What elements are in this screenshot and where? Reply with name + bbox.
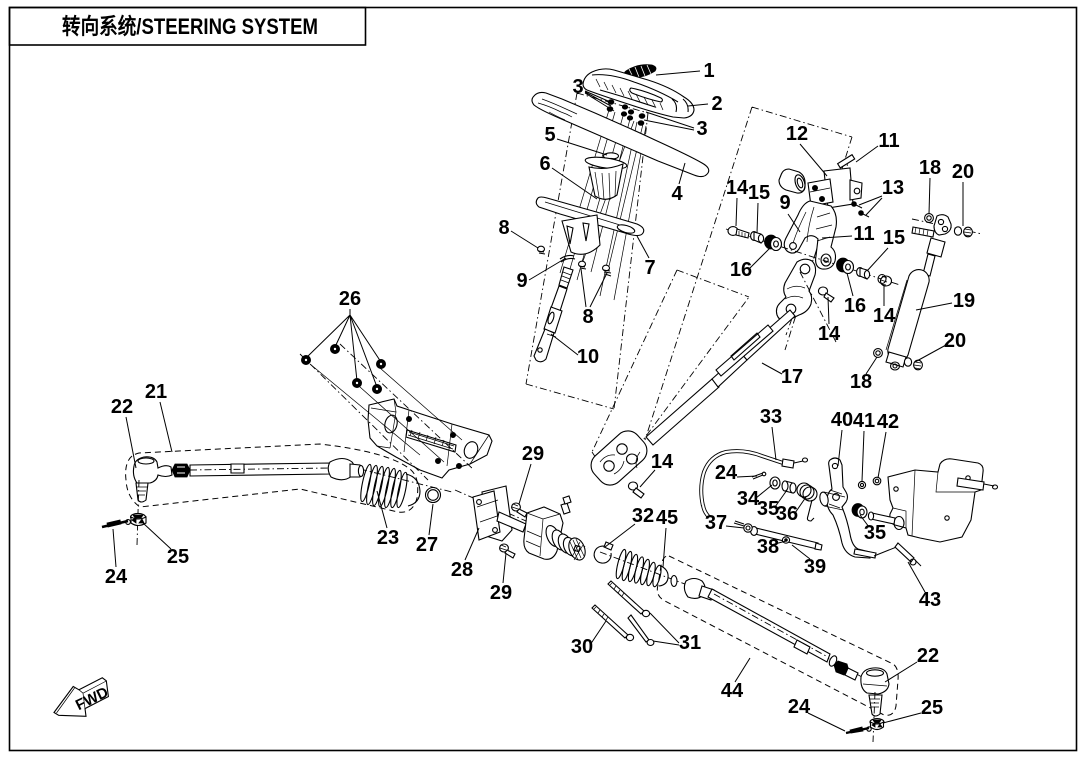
svg-text:37: 37 (705, 512, 727, 534)
svg-text:38: 38 (757, 536, 779, 558)
svg-text:18: 18 (850, 371, 872, 393)
svg-text:13: 13 (882, 177, 904, 199)
svg-text:17: 17 (781, 366, 803, 388)
svg-text:41: 41 (853, 410, 875, 432)
svg-text:40: 40 (831, 409, 853, 431)
svg-text:14: 14 (818, 323, 841, 345)
svg-text:28: 28 (451, 559, 473, 581)
svg-text:21: 21 (145, 381, 167, 403)
svg-text:25: 25 (167, 546, 189, 568)
svg-text:14: 14 (651, 451, 674, 473)
svg-text:5: 5 (544, 124, 555, 146)
svg-text:42: 42 (877, 411, 899, 433)
svg-text:24: 24 (715, 462, 738, 484)
svg-text:45: 45 (656, 507, 678, 529)
svg-text:22: 22 (917, 645, 939, 667)
svg-text:27: 27 (416, 534, 438, 556)
svg-text:7: 7 (644, 257, 655, 279)
svg-text:20: 20 (944, 330, 966, 352)
svg-text:18: 18 (919, 157, 941, 179)
svg-text:16: 16 (730, 259, 752, 281)
svg-text:14: 14 (873, 305, 896, 327)
svg-text:19: 19 (953, 290, 975, 312)
svg-text:31: 31 (679, 632, 701, 654)
svg-text:12: 12 (786, 123, 808, 145)
svg-text:24: 24 (788, 696, 811, 718)
svg-text:23: 23 (377, 527, 399, 549)
svg-text:8: 8 (582, 306, 593, 328)
svg-text:8: 8 (498, 217, 509, 239)
svg-text:15: 15 (748, 182, 770, 204)
svg-text:4: 4 (671, 183, 683, 205)
svg-text:6: 6 (539, 153, 550, 175)
svg-text:22: 22 (111, 396, 133, 418)
svg-text:11: 11 (878, 130, 899, 152)
svg-text:29: 29 (522, 443, 544, 465)
svg-text:32: 32 (632, 505, 654, 527)
svg-text:11: 11 (853, 223, 874, 245)
svg-text:2: 2 (711, 93, 722, 115)
svg-text:44: 44 (721, 680, 744, 702)
svg-text:10: 10 (577, 346, 599, 368)
svg-text:29: 29 (490, 582, 512, 604)
svg-text:16: 16 (844, 295, 866, 317)
svg-text:9: 9 (779, 192, 790, 214)
svg-text:36: 36 (776, 503, 798, 525)
svg-text:24: 24 (105, 566, 128, 588)
svg-text:39: 39 (804, 556, 826, 578)
svg-text:33: 33 (760, 406, 782, 428)
svg-text:30: 30 (571, 636, 593, 658)
svg-text:3: 3 (572, 76, 583, 98)
svg-text:1: 1 (703, 60, 714, 82)
svg-text:15: 15 (883, 227, 905, 249)
svg-text:26: 26 (339, 288, 361, 310)
svg-text:20: 20 (952, 161, 974, 183)
svg-text:43: 43 (919, 589, 941, 611)
svg-text:3: 3 (696, 118, 707, 140)
svg-text:9: 9 (516, 270, 527, 292)
svg-text:转向系统/STEERING SYSTEM: 转向系统/STEERING SYSTEM (62, 14, 318, 39)
svg-text:14: 14 (726, 177, 749, 199)
svg-text:25: 25 (921, 697, 943, 719)
